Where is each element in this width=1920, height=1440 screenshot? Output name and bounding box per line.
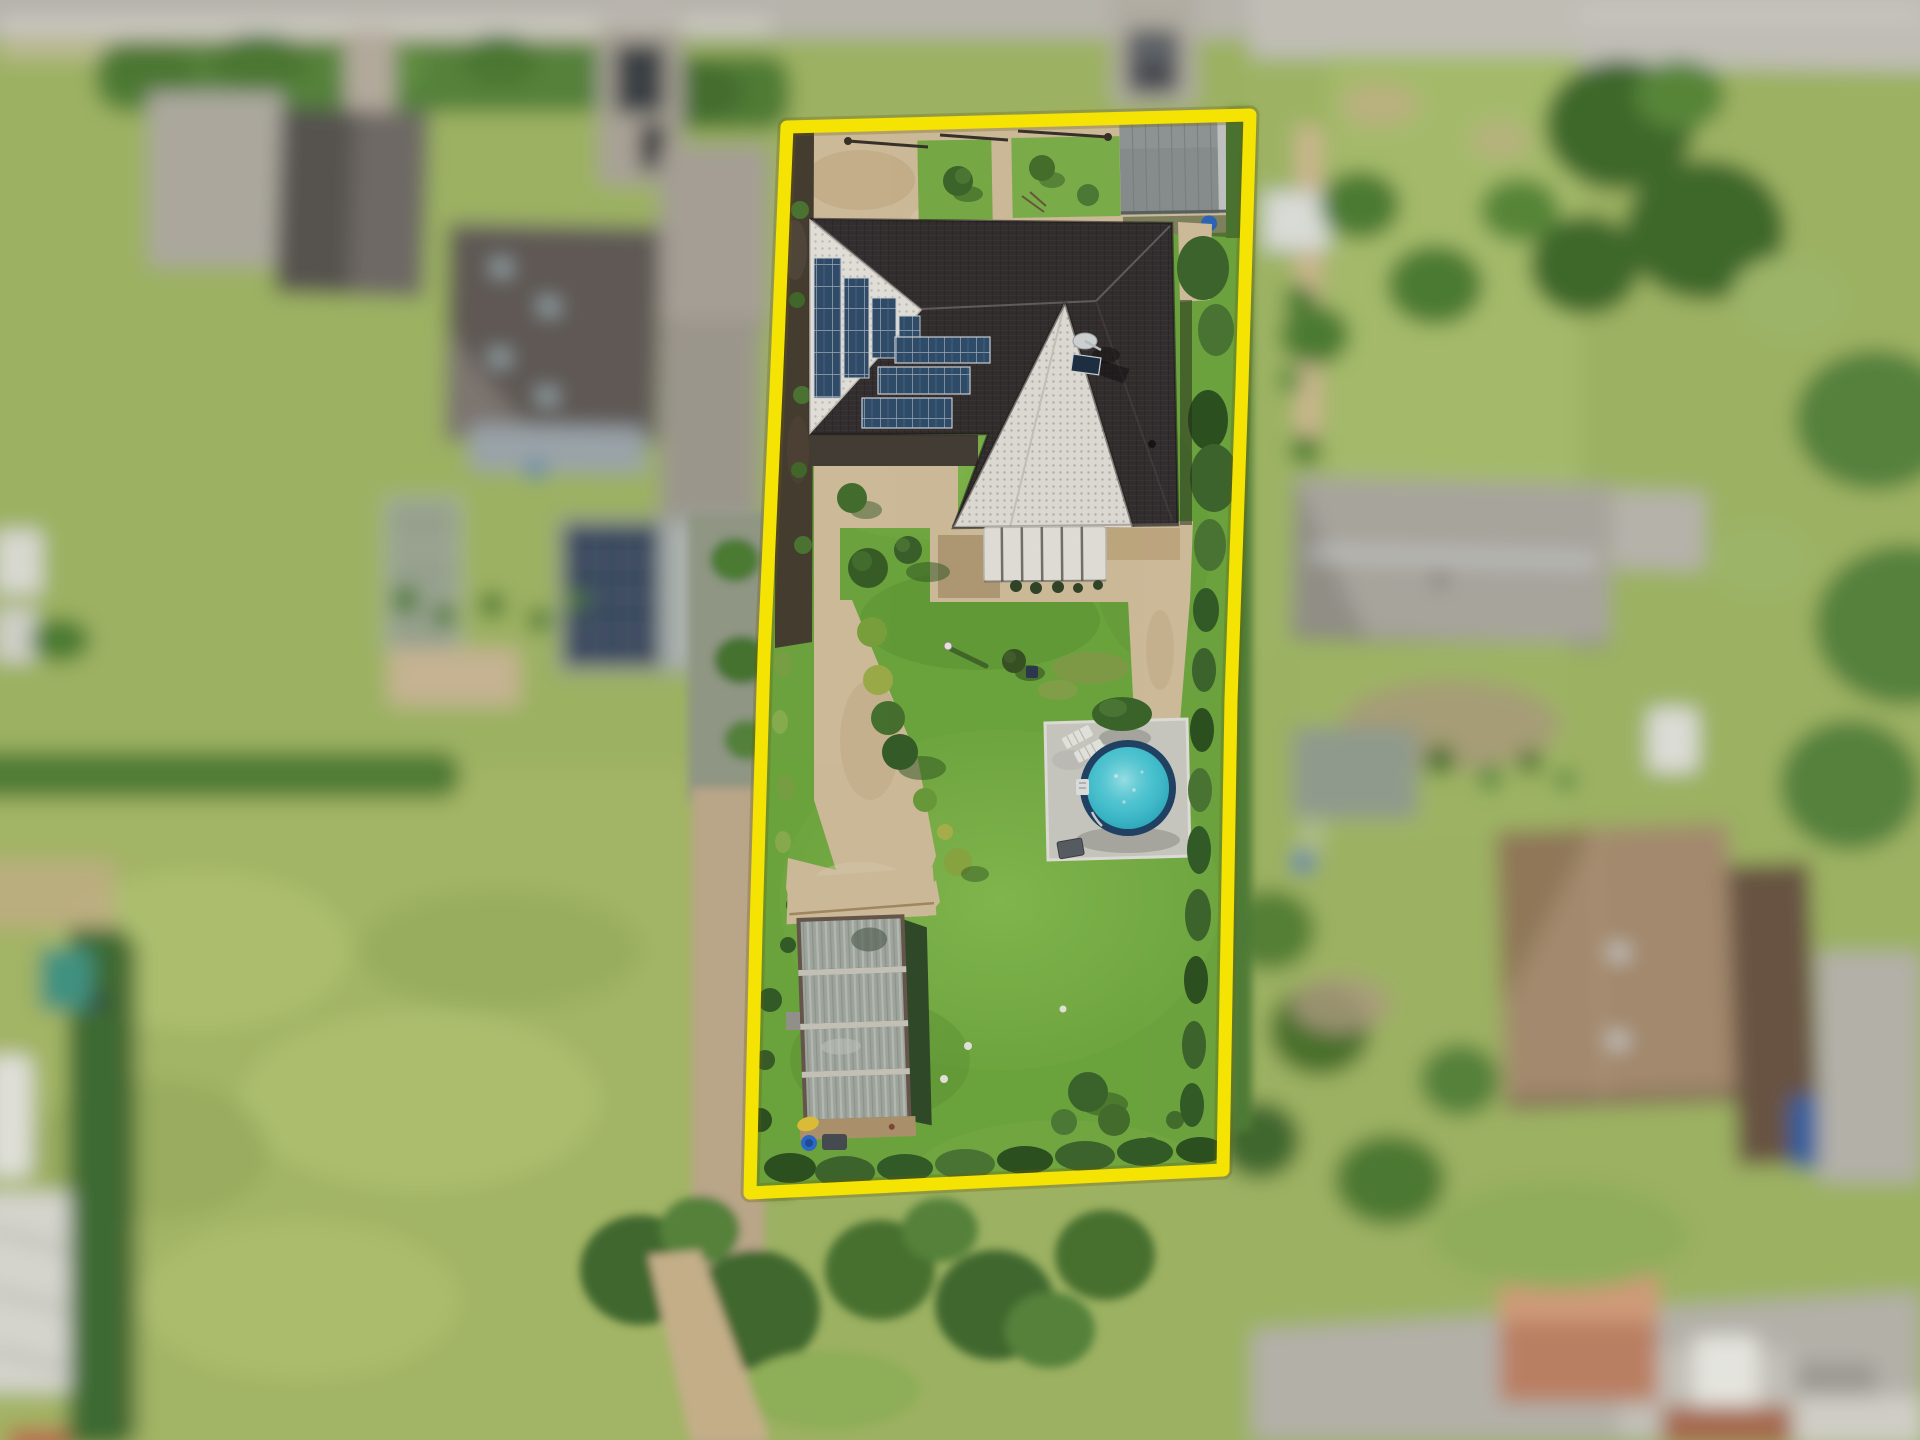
teal-box — [40, 948, 92, 1010]
meadow — [0, 752, 740, 1440]
background-garage-left — [660, 146, 768, 520]
caravan — [0, 1055, 32, 1177]
property-lot — [740, 100, 1260, 1240]
background-house-left — [444, 224, 660, 481]
background-house-topleft — [148, 92, 429, 298]
meadow-hedge-top — [0, 752, 460, 798]
background-shed-right — [1293, 728, 1417, 818]
parked-car-right — [1112, 0, 1197, 105]
blue-trampoline — [1293, 852, 1313, 872]
film-grain — [740, 100, 1260, 1210]
aerial-photo — [0, 0, 1920, 1440]
background-greenhouse-right — [1264, 192, 1328, 250]
